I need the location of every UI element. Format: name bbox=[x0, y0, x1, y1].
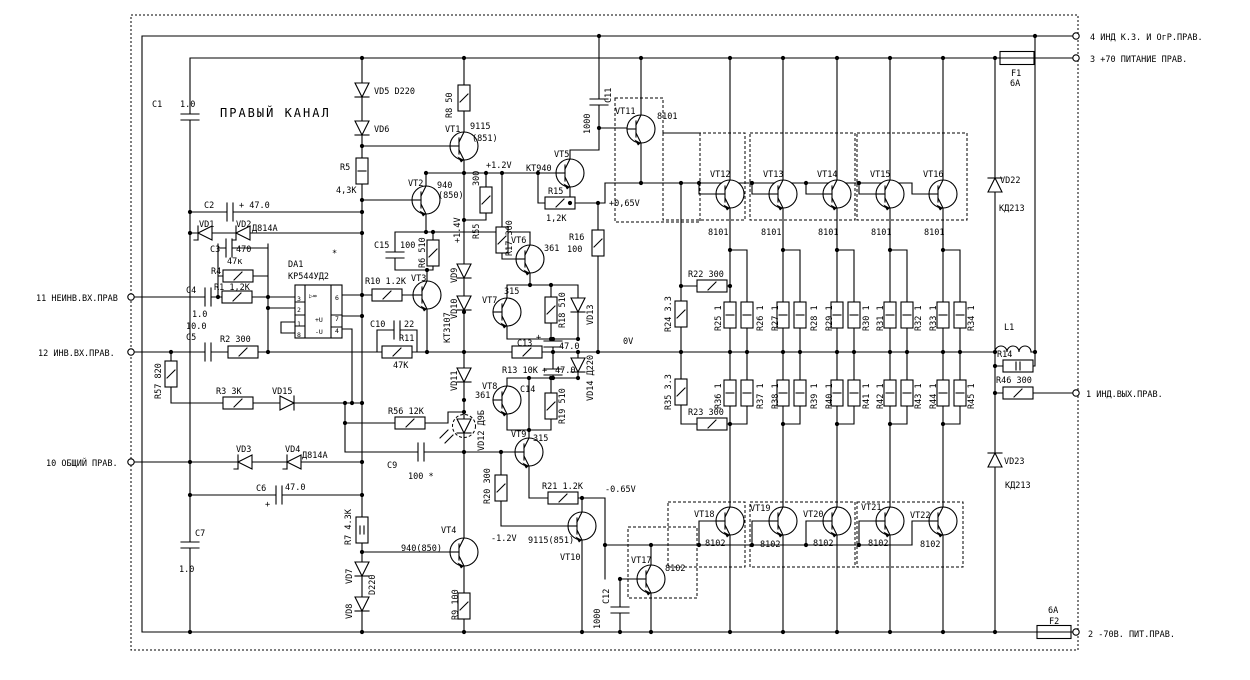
r2-label: R2 300 bbox=[220, 335, 251, 345]
r45-label: R45 1 bbox=[967, 383, 977, 409]
resistor-r7 bbox=[356, 517, 368, 543]
vt14-ref: VT14 bbox=[817, 170, 837, 180]
c14-plus: + bbox=[542, 366, 547, 376]
r10-label: R10 1.2K bbox=[365, 277, 407, 287]
r38-label: R38 1 bbox=[771, 383, 781, 409]
capacitor-c3 bbox=[226, 239, 232, 257]
diode-vd23 bbox=[988, 453, 1002, 467]
resistor-r11 bbox=[382, 346, 412, 358]
vd22-type: КД213 bbox=[999, 204, 1025, 214]
r8-label: R8 50 bbox=[445, 92, 455, 118]
terminal-3-label: 3 +70 ПИТАНИЕ ПРАВ. bbox=[1090, 55, 1187, 65]
vt17-ref: VT17 bbox=[631, 556, 651, 566]
capacitor-c7 bbox=[181, 542, 199, 548]
capacitor-c1 bbox=[181, 114, 199, 120]
vt16-type: 8101 bbox=[924, 228, 944, 238]
c1-val: 1.0 bbox=[180, 100, 195, 110]
vt10-type: 9115(851) bbox=[528, 536, 574, 546]
c11-val: 1000 bbox=[583, 114, 593, 134]
c7-val: 1.0 bbox=[179, 565, 194, 575]
r22-label: R22 300 bbox=[688, 270, 724, 280]
r32-label: R32 1 bbox=[914, 305, 924, 331]
vt3-ref: VT3 bbox=[411, 274, 426, 284]
resistor-r46 bbox=[1003, 387, 1033, 399]
da1-amp-mark: ▷∞ bbox=[309, 292, 317, 300]
c14-ref: C14 bbox=[520, 385, 535, 395]
capacitor-c4 bbox=[205, 288, 211, 306]
resistor-r39 bbox=[794, 380, 806, 406]
resistor-r19 bbox=[545, 393, 557, 419]
vt6-ref: VT6 bbox=[511, 236, 526, 246]
vd6-label: VD6 bbox=[374, 125, 389, 135]
vd7-type: D220 bbox=[368, 575, 378, 595]
vt4-type: 940(850) bbox=[401, 544, 442, 554]
resistor-r37 bbox=[741, 380, 753, 406]
resistor-r36 bbox=[724, 380, 736, 406]
c13-val: 47.0 bbox=[559, 342, 579, 352]
r13-label: R13 10К bbox=[502, 366, 539, 376]
vt9-type: 315 bbox=[533, 434, 548, 444]
led-vd12-arrows bbox=[440, 430, 453, 443]
vt19-ref: VT19 bbox=[750, 504, 770, 514]
vt21-type: 8102 bbox=[868, 539, 888, 549]
vd12-label: VD12 Д9Б bbox=[477, 410, 487, 451]
f1-ref: F1 bbox=[1011, 69, 1021, 79]
vd4-label: VD4 bbox=[285, 445, 300, 455]
r34-label: R34 1 bbox=[967, 305, 977, 331]
terminal-2-label: 2 -70В. ПИТ.ПРАВ. bbox=[1088, 630, 1175, 640]
asterisk-mark: * bbox=[332, 249, 337, 259]
r57-label: R57 820 bbox=[154, 363, 164, 399]
capacitor-c12 bbox=[611, 607, 629, 613]
transistor-vt15 bbox=[876, 180, 904, 211]
transistor-vt11 bbox=[627, 115, 655, 146]
vd7-label: VD7 bbox=[345, 569, 355, 584]
resistor-r21 bbox=[548, 492, 578, 504]
r41-label: R41 1 bbox=[862, 383, 872, 409]
resistor-r23 bbox=[697, 418, 727, 430]
l1-label: L1 bbox=[1004, 323, 1014, 333]
r39-label: R39 1 bbox=[810, 383, 820, 409]
da1-pin8: 8 bbox=[297, 331, 301, 339]
terminal-11 bbox=[128, 294, 134, 300]
r31-label: R31 1 bbox=[876, 305, 886, 331]
r29-label: R29 1 bbox=[825, 305, 835, 331]
tp-minus1v2: -1.2V bbox=[491, 534, 517, 544]
r16-val: 100 bbox=[567, 245, 582, 255]
terminal-12 bbox=[128, 349, 134, 355]
vd23-label: VD23 bbox=[1004, 457, 1024, 467]
c13-plus: + bbox=[536, 333, 541, 343]
r14-label: R14 bbox=[997, 350, 1012, 360]
resistor-r30 bbox=[848, 302, 860, 328]
da1-ref: DA1 bbox=[288, 260, 303, 270]
transistor-vt4 bbox=[450, 538, 478, 569]
r9-label: R9 100 bbox=[451, 589, 461, 620]
diode-vd5 bbox=[355, 83, 369, 97]
vt7-ref: VT7 bbox=[482, 296, 497, 306]
r46-label: R46 300 bbox=[996, 376, 1032, 386]
f1-val: 6А bbox=[1010, 79, 1020, 89]
da1-pin4: 4 bbox=[335, 327, 339, 335]
resistor-r56 bbox=[395, 417, 425, 429]
c15-ref: C15 bbox=[374, 241, 389, 251]
tp-plus065: +0,65V bbox=[609, 199, 640, 209]
vt14-type: 8101 bbox=[818, 228, 838, 238]
c6-val: 47.0 bbox=[285, 483, 305, 493]
resistor-r35 bbox=[675, 379, 687, 405]
r16-ref: R16 bbox=[569, 233, 584, 243]
diode-vd4 bbox=[287, 455, 301, 469]
c2-val: + 47.0 bbox=[239, 201, 270, 211]
r11-val: 47К bbox=[393, 361, 409, 371]
vt4-ref: VT4 bbox=[441, 526, 456, 536]
capacitor-c9 bbox=[418, 443, 424, 461]
terminal-10 bbox=[128, 459, 134, 465]
vd2-label: VD2 bbox=[236, 220, 251, 230]
da1-pin7: 7 bbox=[335, 315, 339, 323]
schematic-page: ПРАВЫЙ КАНАЛ 11 НЕИНВ.ВХ.ПРАВ 12 ИНВ.ВХ.… bbox=[0, 0, 1250, 680]
resistor-r25 bbox=[724, 302, 736, 328]
r33-label: R33 1 bbox=[929, 305, 939, 331]
resistor-r43 bbox=[901, 380, 913, 406]
r4-ref: R4 bbox=[211, 267, 221, 277]
r19-label: R19 510 bbox=[558, 388, 568, 424]
zener2-type: Д814А bbox=[302, 451, 328, 461]
r35-label: R35 3.3 bbox=[664, 374, 674, 410]
vt19-type: 8102 bbox=[760, 540, 780, 550]
capacitor-c15 bbox=[386, 252, 404, 258]
transistor-vt3 bbox=[413, 281, 441, 312]
terminal-11-label: 11 НЕИНВ.ВХ.ПРАВ bbox=[36, 294, 118, 304]
vt2-type: 940 bbox=[437, 181, 452, 191]
c9-val: 100 * bbox=[408, 472, 434, 482]
transistor-vt13 bbox=[769, 180, 797, 211]
r5-val: 4,3К bbox=[336, 186, 357, 196]
vt10-ref: VT10 bbox=[560, 553, 580, 563]
vt2-ref: VT2 bbox=[408, 179, 423, 189]
vt20-type: 8102 bbox=[813, 539, 833, 549]
vt2-type2: (850) bbox=[438, 191, 464, 201]
r6-label: R6 510 bbox=[418, 237, 428, 268]
r30-label: R30 1 bbox=[862, 305, 872, 331]
diode-vd8 bbox=[355, 597, 369, 611]
vd15-label: VD15 bbox=[272, 387, 292, 397]
r24-label: R24 3.3 bbox=[664, 296, 674, 332]
vd8-label: VD8 bbox=[345, 604, 355, 619]
vt8-type: 361 bbox=[475, 391, 490, 401]
led-vd12 bbox=[457, 419, 471, 433]
vt16-ref: VT16 bbox=[923, 170, 943, 180]
resistor-r28 bbox=[794, 302, 806, 328]
vt7-type: 315 bbox=[504, 287, 519, 297]
resistor-r32 bbox=[901, 302, 913, 328]
vt15-type: 8101 bbox=[871, 228, 891, 238]
vd1-label: VD1 bbox=[199, 220, 214, 230]
vd10-label: VD10 bbox=[450, 299, 460, 319]
vt12-type: 8101 bbox=[708, 228, 728, 238]
vt1-ref: VT1 bbox=[445, 125, 460, 135]
r21-label: R21 1.2К bbox=[542, 482, 584, 492]
schematic-labels: ПРАВЫЙ КАНАЛ 11 НЕИНВ.ВХ.ПРАВ 12 ИНВ.ВХ.… bbox=[36, 33, 1203, 640]
vd14-label: VD14 Д220 bbox=[586, 355, 596, 401]
tp-zero: 0V bbox=[623, 337, 633, 347]
vd5-label: VD5 D220 bbox=[374, 87, 415, 97]
r7-label: R7 4.3К bbox=[344, 508, 354, 545]
vt9-ref: VT9 bbox=[511, 430, 526, 440]
da1-pin6: 6 bbox=[335, 294, 339, 302]
resistor-r5 bbox=[356, 158, 368, 184]
f2-val: 6А bbox=[1048, 606, 1058, 616]
r4-val: 47к bbox=[227, 257, 242, 267]
da1-pin1: 1 bbox=[297, 320, 301, 328]
resistor-r26 bbox=[741, 302, 753, 328]
diode-vd13 bbox=[571, 298, 585, 312]
fuse-f1 bbox=[1000, 52, 1034, 65]
r3-label: R3 3К bbox=[216, 387, 242, 397]
capacitor-c2 bbox=[227, 203, 233, 221]
c6-plus: + bbox=[265, 500, 270, 510]
zener1-type: Д814А bbox=[252, 224, 278, 234]
r26-label: R26 1 bbox=[756, 305, 766, 331]
transistor-vt22 bbox=[929, 507, 957, 538]
vt1-type: 9115 bbox=[470, 122, 490, 132]
resistor-r6 bbox=[427, 240, 439, 266]
c9-ref: C9 bbox=[387, 461, 397, 471]
tp-plus1v2: +1.2V bbox=[486, 161, 512, 171]
r20-label: R20 300 bbox=[483, 468, 493, 504]
da1-part: КР544УД2 bbox=[288, 272, 329, 282]
r44-label: R44 1 bbox=[929, 383, 939, 409]
terminal-4 bbox=[1073, 33, 1079, 39]
c12-ref: C12 bbox=[602, 589, 612, 604]
c14-val: 47.0 bbox=[555, 366, 575, 376]
c7-ref: C7 bbox=[195, 529, 205, 539]
c5-ref: C5 bbox=[186, 333, 196, 343]
vd9-label: VD9 bbox=[450, 268, 460, 283]
resistor-r55 bbox=[480, 187, 492, 213]
terminal-3 bbox=[1073, 55, 1079, 61]
c5-val: 10.0 bbox=[186, 322, 206, 332]
terminal-10-label: 10 ОБЩИЙ ПРАВ. bbox=[46, 457, 118, 469]
resistor-r41 bbox=[848, 380, 860, 406]
c15-val: 100 bbox=[400, 241, 415, 251]
transistor-vt14 bbox=[823, 180, 851, 211]
vt17-type: 8102 bbox=[665, 564, 685, 574]
transistor-vt18 bbox=[716, 507, 744, 538]
tp-plus1v4: +1.4V bbox=[453, 217, 463, 243]
vd22-label: VD22 bbox=[1000, 176, 1020, 186]
resistor-r4 bbox=[223, 270, 253, 282]
c11-ref: C11 bbox=[604, 88, 614, 103]
vt22-type: 8102 bbox=[920, 540, 940, 550]
transistor-vt12 bbox=[716, 180, 744, 211]
vt11-type: 8101 bbox=[657, 112, 677, 122]
c13-ref: C13 bbox=[517, 339, 532, 349]
r55-val: 300 bbox=[472, 171, 482, 186]
r25-label: R25 1 bbox=[714, 305, 724, 331]
r42-label: R42 1 bbox=[876, 383, 886, 409]
da1-pin2: 2 bbox=[297, 306, 301, 314]
c2-ref: C2 bbox=[204, 201, 214, 211]
r15-ref: R15 bbox=[548, 187, 563, 197]
resistor-r14 bbox=[1003, 360, 1033, 372]
capacitor-c5 bbox=[205, 343, 211, 361]
diode-vd6 bbox=[355, 121, 369, 135]
terminal-4-label: 4 ИНД К.З. И ОгР.ПРАВ. bbox=[1090, 33, 1203, 43]
vt20-ref: VT20 bbox=[803, 510, 823, 520]
resistor-r18 bbox=[545, 297, 557, 323]
resistor-r20 bbox=[495, 475, 507, 501]
vt5-ref: VT5 bbox=[554, 150, 569, 160]
resistor-r45 bbox=[954, 380, 966, 406]
transistor-vt6 bbox=[516, 245, 544, 276]
vt22-ref: VT22 bbox=[910, 511, 930, 521]
da1-minus-u: -U bbox=[315, 328, 323, 336]
resistor-r3 bbox=[223, 397, 253, 409]
r56-label: R56 12К bbox=[388, 407, 425, 417]
terminal-1 bbox=[1073, 390, 1079, 396]
r37-label: R37 1 bbox=[756, 383, 766, 409]
da1-pin3: 3 bbox=[297, 295, 301, 303]
c10-val: 22 bbox=[404, 320, 414, 330]
terminal-12-label: 12 ИНВ.ВХ.ПРАВ. bbox=[38, 349, 115, 359]
r55-ref: R55 bbox=[472, 224, 482, 239]
c6-ref: C6 bbox=[256, 484, 266, 494]
r40-label: R40 1 bbox=[825, 383, 835, 409]
resistor-r16 bbox=[592, 230, 604, 256]
page-title: ПРАВЫЙ КАНАЛ bbox=[220, 105, 331, 120]
schematic-canvas: ПРАВЫЙ КАНАЛ 11 НЕИНВ.ВХ.ПРАВ 12 ИНВ.ВХ.… bbox=[0, 0, 1250, 680]
terminal-2 bbox=[1073, 629, 1079, 635]
resistor-r57 bbox=[165, 361, 177, 387]
r27-label: R27 1 bbox=[771, 305, 781, 331]
c10-ref: C10 bbox=[370, 320, 385, 330]
c12-val: 1000 bbox=[593, 609, 603, 629]
transistor-vt19 bbox=[769, 507, 797, 538]
resistor-r22 bbox=[697, 280, 727, 292]
c4-ref: C4 bbox=[186, 286, 196, 296]
c4-val: 1.0 bbox=[192, 310, 207, 320]
r18-label: R18 510 bbox=[558, 292, 568, 328]
c3-ref: C3 bbox=[210, 245, 220, 255]
capacitor-c6 bbox=[276, 486, 282, 504]
transistor-vt17 bbox=[637, 565, 665, 596]
vt6-type: 361 bbox=[544, 244, 559, 254]
diode-vd3 bbox=[238, 455, 252, 469]
vt5-type: КТ940 bbox=[526, 164, 552, 174]
transistor-vt2 bbox=[412, 186, 440, 217]
r28-label: R28 1 bbox=[810, 305, 820, 331]
transistor-vt20 bbox=[823, 507, 851, 538]
diode-vd15 bbox=[280, 396, 294, 410]
r1-label: R1 1,2K bbox=[214, 283, 251, 293]
vt13-type: 8101 bbox=[761, 228, 781, 238]
r36-label: R36 1 bbox=[714, 383, 724, 409]
vd3-label: VD3 bbox=[236, 445, 251, 455]
resistor-r2 bbox=[228, 346, 258, 358]
resistor-r34 bbox=[954, 302, 966, 328]
vd13-label: VD13 bbox=[586, 305, 596, 325]
transistor-vt5 bbox=[556, 159, 584, 190]
diode-vd7 bbox=[355, 562, 369, 576]
vt1-type2: (851) bbox=[472, 134, 498, 144]
resistor-r8 bbox=[458, 85, 470, 111]
vt21-ref: VT21 bbox=[861, 503, 881, 513]
c3-val: 470 bbox=[236, 245, 251, 255]
vd11-label: VD11 bbox=[450, 371, 460, 391]
terminal-1-label: 1 ИНД.ВЫХ.ПРАВ. bbox=[1086, 390, 1163, 400]
vt15-ref: VT15 bbox=[870, 170, 890, 180]
vd23-type: КД213 bbox=[1005, 481, 1031, 491]
resistor-r24 bbox=[675, 301, 687, 327]
fuse-f2 bbox=[1037, 626, 1071, 639]
resistor-r10 bbox=[372, 289, 402, 301]
vt12-ref: VT12 bbox=[710, 170, 730, 180]
vt13-ref: VT13 bbox=[763, 170, 783, 180]
r43-label: R43 1 bbox=[914, 383, 924, 409]
r11-ref: R11 bbox=[399, 334, 414, 344]
r5-ref: R5 bbox=[340, 163, 350, 173]
da1-plus-u: +U bbox=[315, 316, 323, 324]
c1-ref: C1 bbox=[152, 100, 162, 110]
transistor-vt16 bbox=[929, 180, 957, 211]
vt18-ref: VT18 bbox=[694, 510, 714, 520]
r15-val: 1,2К bbox=[546, 214, 567, 224]
vt18-type: 8102 bbox=[705, 539, 725, 549]
tp-minus065: -0.65V bbox=[605, 485, 636, 495]
f2-ref: F2 bbox=[1049, 617, 1059, 627]
vt11-ref: VT11 bbox=[615, 107, 635, 117]
